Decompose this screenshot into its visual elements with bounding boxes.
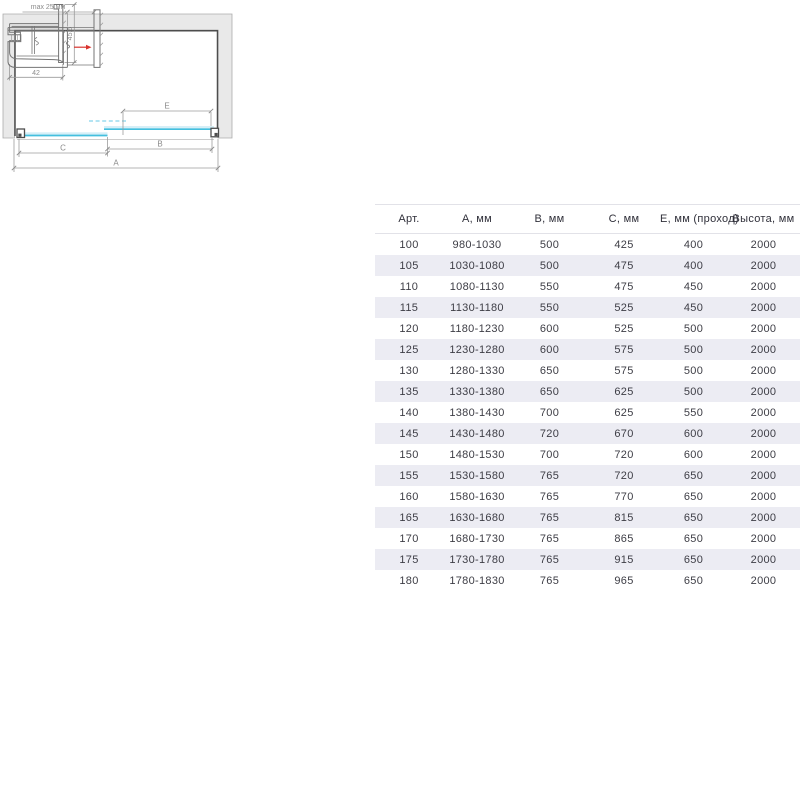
table-cell: 2000 (727, 239, 800, 251)
table-cell: 135 (375, 386, 443, 398)
table-cell: 550 (511, 302, 588, 314)
table-cell: 700 (511, 449, 588, 461)
table-row: 1301280-13306505755002000 (375, 360, 800, 381)
table-cell: 550 (511, 281, 588, 293)
table-cell: 2000 (727, 302, 800, 314)
table-row: 1551530-15807657206502000 (375, 465, 800, 486)
table-cell: 145 (375, 428, 443, 440)
table-cell: 165 (375, 512, 443, 524)
table-cell: 2000 (727, 260, 800, 272)
table-cell: 180 (375, 575, 443, 587)
table-cell: 575 (588, 365, 660, 377)
table-cell: 500 (660, 344, 727, 356)
table-row: 1451430-14807206706002000 (375, 423, 800, 444)
table-cell: 915 (588, 554, 660, 566)
table-cell: 1280-1330 (443, 365, 511, 377)
table-cell: 1630-1680 (443, 512, 511, 524)
table-cell: 155 (375, 470, 443, 482)
table-cell: 650 (511, 386, 588, 398)
table-cell: 500 (511, 260, 588, 272)
table-row: 1101080-11305504754502000 (375, 276, 800, 297)
table-cell: 700 (511, 407, 588, 419)
table-cell: 625 (588, 407, 660, 419)
dimension-a-label: А (113, 159, 119, 168)
table-cell: 765 (511, 554, 588, 566)
table-cell: 400 (660, 239, 727, 251)
dimension-c: С (17, 139, 110, 157)
table-cell: 650 (511, 365, 588, 377)
spec-table-body: 100980-103050042540020001051030-10805004… (375, 234, 800, 591)
table-cell: 650 (660, 533, 727, 545)
table-cell: 500 (660, 365, 727, 377)
table-header-row: Арт. А, мм В, мм С, мм Е, мм (проход) Вы… (375, 204, 800, 234)
table-cell: 600 (511, 323, 588, 335)
table-cell: 525 (588, 302, 660, 314)
table-cell: 670 (588, 428, 660, 440)
dimension-b: В (105, 137, 214, 157)
spec-sheet: Е В С А (0, 0, 800, 800)
table-cell: 110 (375, 281, 443, 293)
table-cell: 865 (588, 533, 660, 545)
table-cell: 500 (511, 239, 588, 251)
adjustment-limit-label: max 25 мм (31, 4, 66, 11)
table-row: 1351330-13806506255002000 (375, 381, 800, 402)
table-cell: 2000 (727, 428, 800, 440)
table-cell: 765 (511, 491, 588, 503)
table-row: 1051030-10805004754002000 (375, 255, 800, 276)
table-cell: 2000 (727, 491, 800, 503)
table-cell: 1730-1780 (443, 554, 511, 566)
table-cell: 1230-1280 (443, 344, 511, 356)
table-cell: 1580-1630 (443, 491, 511, 503)
table-cell: 425 (588, 239, 660, 251)
table-row: 100980-10305004254002000 (375, 234, 800, 255)
table-row: 1201180-12306005255002000 (375, 318, 800, 339)
table-row: 1151130-11805505254502000 (375, 297, 800, 318)
table-cell: 115 (375, 302, 443, 314)
table-cell: 120 (375, 323, 443, 335)
table-cell: 815 (588, 512, 660, 524)
table-cell: 650 (660, 512, 727, 524)
table-row: 1751730-17807659156502000 (375, 549, 800, 570)
table-row: 1501480-15307007206002000 (375, 444, 800, 465)
table-cell: 1330-1380 (443, 386, 511, 398)
table-cell: 475 (588, 281, 660, 293)
dimension-adjustment: max 25 мм (23, 4, 97, 27)
table-cell: 2000 (727, 407, 800, 419)
header-c-mm: С, мм (588, 213, 660, 225)
table-cell: 720 (588, 470, 660, 482)
table-row: 1251230-12806005755002000 (375, 339, 800, 360)
table-cell: 1480-1530 (443, 449, 511, 461)
table-cell: 650 (660, 554, 727, 566)
table-cell: 980-1030 (443, 239, 511, 251)
dimension-e-label: Е (164, 102, 169, 111)
spec-table: Арт. А, мм В, мм С, мм Е, мм (проход) Вы… (375, 204, 800, 591)
table-cell: 2000 (727, 533, 800, 545)
glass-clip-mark (66, 42, 69, 49)
left-wall-profile (17, 129, 25, 138)
table-cell: 765 (511, 533, 588, 545)
dimension-a: А (12, 139, 220, 172)
table-cell: 600 (660, 449, 727, 461)
table-cell: 765 (511, 512, 588, 524)
table-cell: 2000 (727, 365, 800, 377)
table-cell: 650 (660, 470, 727, 482)
table-cell: 1430-1480 (443, 428, 511, 440)
dimension-b-label: В (157, 140, 162, 149)
table-cell: 1030-1080 (443, 260, 511, 272)
table-cell: 150 (375, 449, 443, 461)
table-cell: 600 (511, 344, 588, 356)
table-cell: 770 (588, 491, 660, 503)
table-cell: 575 (588, 344, 660, 356)
table-cell: 600 (660, 428, 727, 440)
dimension-c-label: С (60, 144, 66, 153)
right-wall-profile (211, 128, 219, 137)
table-cell: 720 (511, 428, 588, 440)
table-cell: 105 (375, 260, 443, 272)
table-cell: 525 (588, 323, 660, 335)
table-row: 1401380-14307006255502000 (375, 402, 800, 423)
table-cell: 140 (375, 407, 443, 419)
table-cell: 400 (660, 260, 727, 272)
table-cell: 130 (375, 365, 443, 377)
header-height-mm: Высота, мм (727, 213, 800, 225)
wall-flange (94, 10, 100, 68)
table-cell: 2000 (727, 470, 800, 482)
table-cell: 650 (660, 575, 727, 587)
table-cell: 1180-1230 (443, 323, 511, 335)
table-cell: 2000 (727, 554, 800, 566)
table-row: 1701680-17307658656502000 (375, 528, 800, 549)
table-cell: 1380-1430 (443, 407, 511, 419)
table-cell: 765 (511, 470, 588, 482)
table-cell: 475 (588, 260, 660, 272)
table-cell: 625 (588, 386, 660, 398)
table-cell: 765 (511, 575, 588, 587)
table-cell: 1680-1730 (443, 533, 511, 545)
serration-teeth (12, 35, 18, 42)
table-cell: 2000 (727, 575, 800, 587)
table-row: 1651630-16807658156502000 (375, 507, 800, 528)
table-cell: 1080-1130 (443, 281, 511, 293)
table-cell: 1130-1180 (443, 302, 511, 314)
table-cell: 1530-1580 (443, 470, 511, 482)
table-cell: 100 (375, 239, 443, 251)
table-row: 1801780-18307659656502000 (375, 570, 800, 591)
table-cell: 550 (660, 407, 727, 419)
table-cell: 500 (660, 323, 727, 335)
table-cell: 160 (375, 491, 443, 503)
table-cell: 650 (660, 491, 727, 503)
table-cell: 1780-1830 (443, 575, 511, 587)
table-cell: 450 (660, 281, 727, 293)
table-row: 1601580-16307657706502000 (375, 486, 800, 507)
header-a-mm: А, мм (443, 213, 511, 225)
table-cell: 2000 (727, 323, 800, 335)
table-cell: 720 (588, 449, 660, 461)
adjustment-arrow (74, 45, 92, 50)
table-cell: 175 (375, 554, 443, 566)
profile-outline (8, 10, 103, 68)
profile-section-bottom: max 25 мм (0, 0, 105, 75)
table-cell: 125 (375, 344, 443, 356)
table-cell: 2000 (727, 512, 800, 524)
header-art: Арт. (375, 213, 443, 225)
table-cell: 2000 (727, 281, 800, 293)
table-cell: 965 (588, 575, 660, 587)
table-cell: 2000 (727, 449, 800, 461)
header-e-mm: Е, мм (проход) (660, 213, 727, 225)
table-cell: 2000 (727, 344, 800, 356)
table-cell: 170 (375, 533, 443, 545)
table-cell: 500 (660, 386, 727, 398)
table-cell: 450 (660, 302, 727, 314)
table-cell: 2000 (727, 386, 800, 398)
header-b-mm: В, мм (511, 213, 588, 225)
